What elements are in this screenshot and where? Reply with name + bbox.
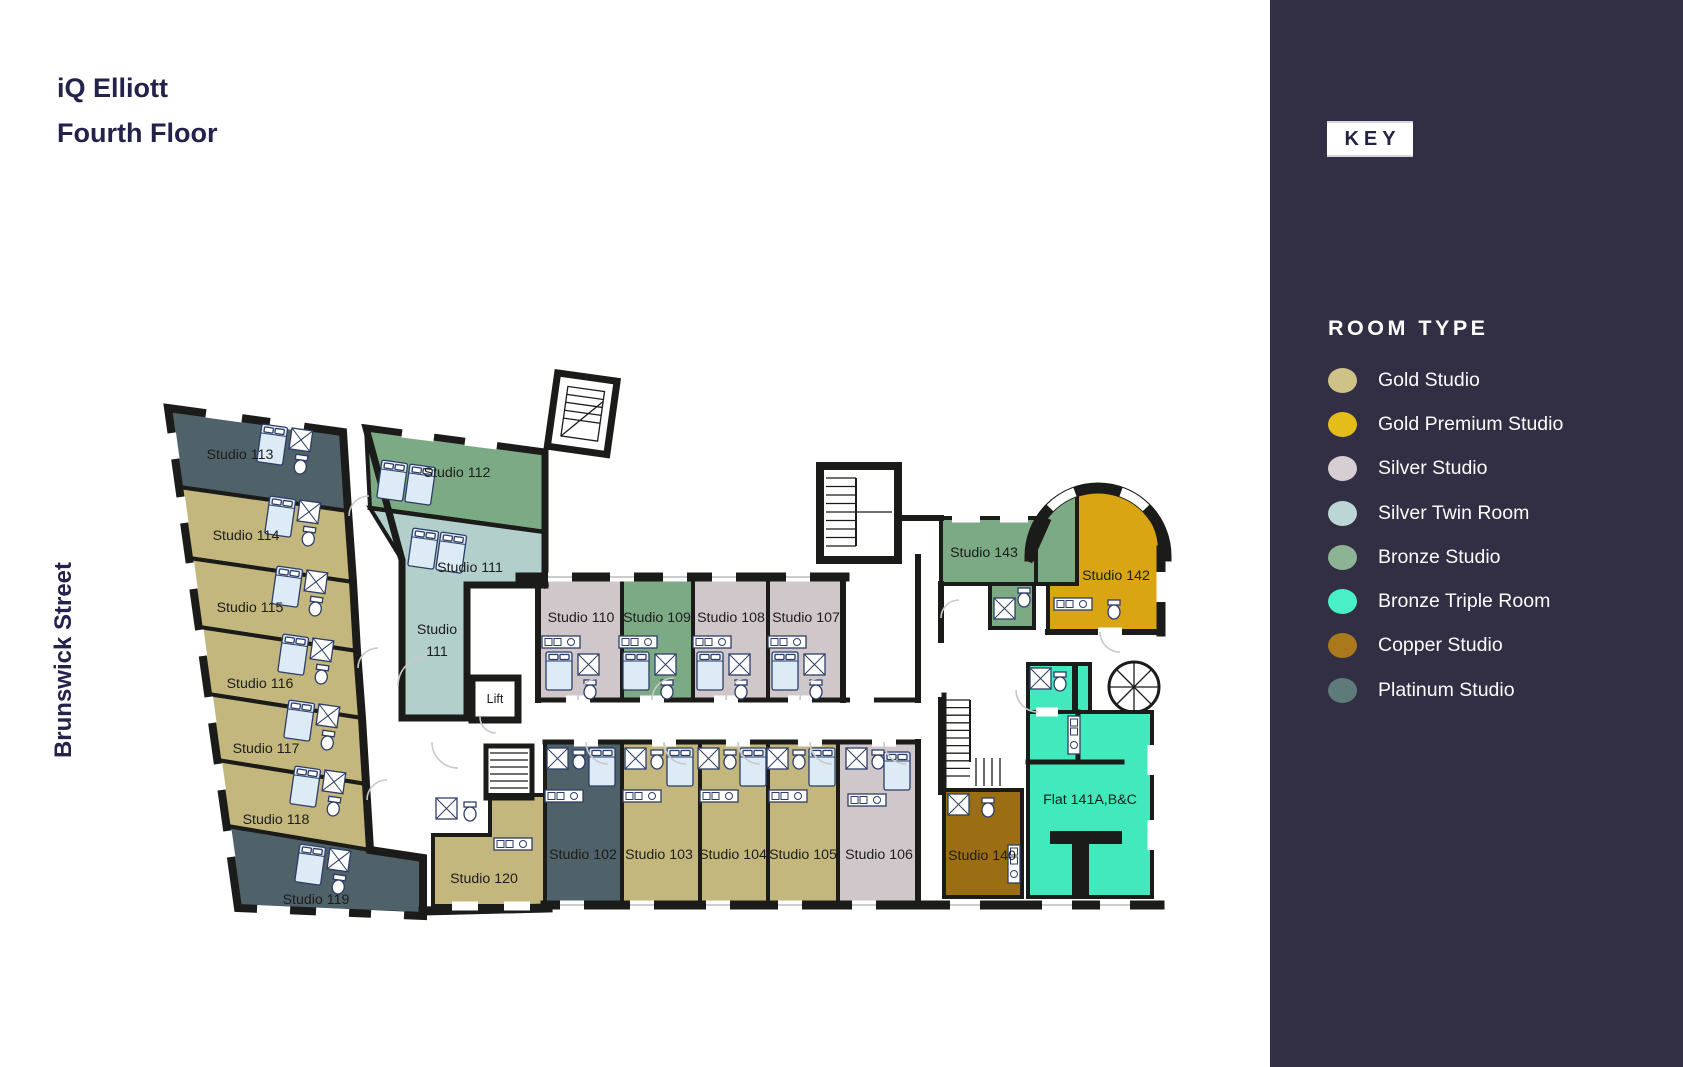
staircase-east — [820, 466, 898, 560]
room-label-flat-141: Flat 141A,B&C — [1043, 792, 1137, 808]
room-label-studio-106: Studio 106 — [845, 847, 913, 863]
floorplan-drawing: Studio 113 Studio 114 Studio 115 Studio … — [0, 0, 1270, 1067]
room-label-studio-117: Studio 117 — [233, 741, 300, 757]
room-type-heading: ROOM TYPE — [1328, 316, 1489, 341]
staircase-lobby — [486, 746, 532, 798]
legend-label: Gold Studio — [1378, 369, 1480, 392]
room-label-studio-143: Studio 143 — [950, 545, 1018, 561]
legend: Gold Studio Gold Premium Studio Silver S… — [1328, 358, 1563, 712]
room-label-studio-114: Studio 114 — [213, 528, 280, 544]
room-flat-141-store — [1076, 664, 1090, 712]
legend-label: Silver Studio — [1378, 457, 1487, 480]
legend-item-silver-twin-room: Silver Twin Room — [1328, 491, 1563, 535]
room-label-studio-119: Studio 119 — [283, 892, 350, 908]
key-panel: KEY ROOM TYPE Gold Studio Gold Premium S… — [1270, 0, 1683, 1067]
room-label-studio-115: Studio 115 — [217, 600, 284, 616]
room-label-studio-103: Studio 103 — [625, 847, 693, 863]
key-title: KEY — [1344, 128, 1400, 151]
key-title-box: KEY — [1327, 121, 1413, 157]
room-label-studio-105: Studio 105 — [769, 847, 837, 863]
room-label-studio-113: Studio 113 — [207, 447, 274, 463]
floorplan-page: iQ Elliott Fourth Floor Brunswick Street — [0, 0, 1683, 1067]
legend-item-gold-premium-studio: Gold Premium Studio — [1328, 402, 1563, 446]
legend-label: Silver Twin Room — [1378, 502, 1529, 525]
staircase-west-wing — [946, 700, 1000, 786]
room-label-lift: Lift — [487, 692, 504, 706]
room-label-studio-112: Studio 112 — [424, 465, 491, 481]
room-label-studio-102: Studio 102 — [549, 847, 617, 863]
legend-dot-silver-twin-room — [1328, 501, 1357, 526]
legend-item-gold-studio: Gold Studio — [1328, 358, 1563, 402]
legend-dot-gold-premium-studio — [1328, 412, 1357, 437]
legend-dot-platinum-studio — [1328, 678, 1357, 703]
legend-dot-silver-studio — [1328, 456, 1357, 481]
legend-item-bronze-triple-room: Bronze Triple Room — [1328, 579, 1563, 623]
legend-item-copper-studio: Copper Studio — [1328, 624, 1563, 668]
legend-label: Platinum Studio — [1378, 679, 1515, 702]
room-label-studio-140: Studio 140 — [948, 848, 1016, 864]
room-label-studio-118: Studio 118 — [243, 812, 310, 828]
spiral-staircase — [1109, 662, 1159, 712]
room-label-studio-111: Studio 111 — [437, 560, 503, 576]
staircase-top — [547, 373, 617, 455]
legend-dot-copper-studio — [1328, 633, 1357, 658]
legend-dot-bronze-triple-room — [1328, 589, 1357, 614]
room-label-studio-116: Studio 116 — [227, 676, 294, 692]
room-label-studio-142: Studio 142 — [1082, 568, 1150, 584]
legend-label: Gold Premium Studio — [1378, 413, 1563, 436]
legend-label: Bronze Triple Room — [1378, 590, 1550, 613]
room-label-studio-108: Studio 108 — [697, 610, 765, 626]
legend-label: Bronze Studio — [1378, 546, 1501, 569]
room-label-studio-109: Studio 109 — [623, 610, 691, 626]
legend-item-platinum-studio: Platinum Studio — [1328, 668, 1563, 712]
room-label-studio-111b-line1: Studio — [417, 622, 457, 638]
room-label-studio-120: Studio 120 — [450, 871, 518, 887]
legend-dot-gold-studio — [1328, 368, 1357, 393]
legend-label: Copper Studio — [1378, 634, 1503, 657]
room-label-studio-104: Studio 104 — [699, 847, 767, 863]
legend-dot-bronze-studio — [1328, 545, 1357, 570]
room-label-studio-111b-line2: 111 — [426, 644, 448, 660]
legend-item-silver-studio: Silver Studio — [1328, 447, 1563, 491]
room-label-studio-107: Studio 107 — [772, 610, 840, 626]
room-label-studio-110: Studio 110 — [548, 610, 615, 626]
legend-item-bronze-studio: Bronze Studio — [1328, 535, 1563, 579]
